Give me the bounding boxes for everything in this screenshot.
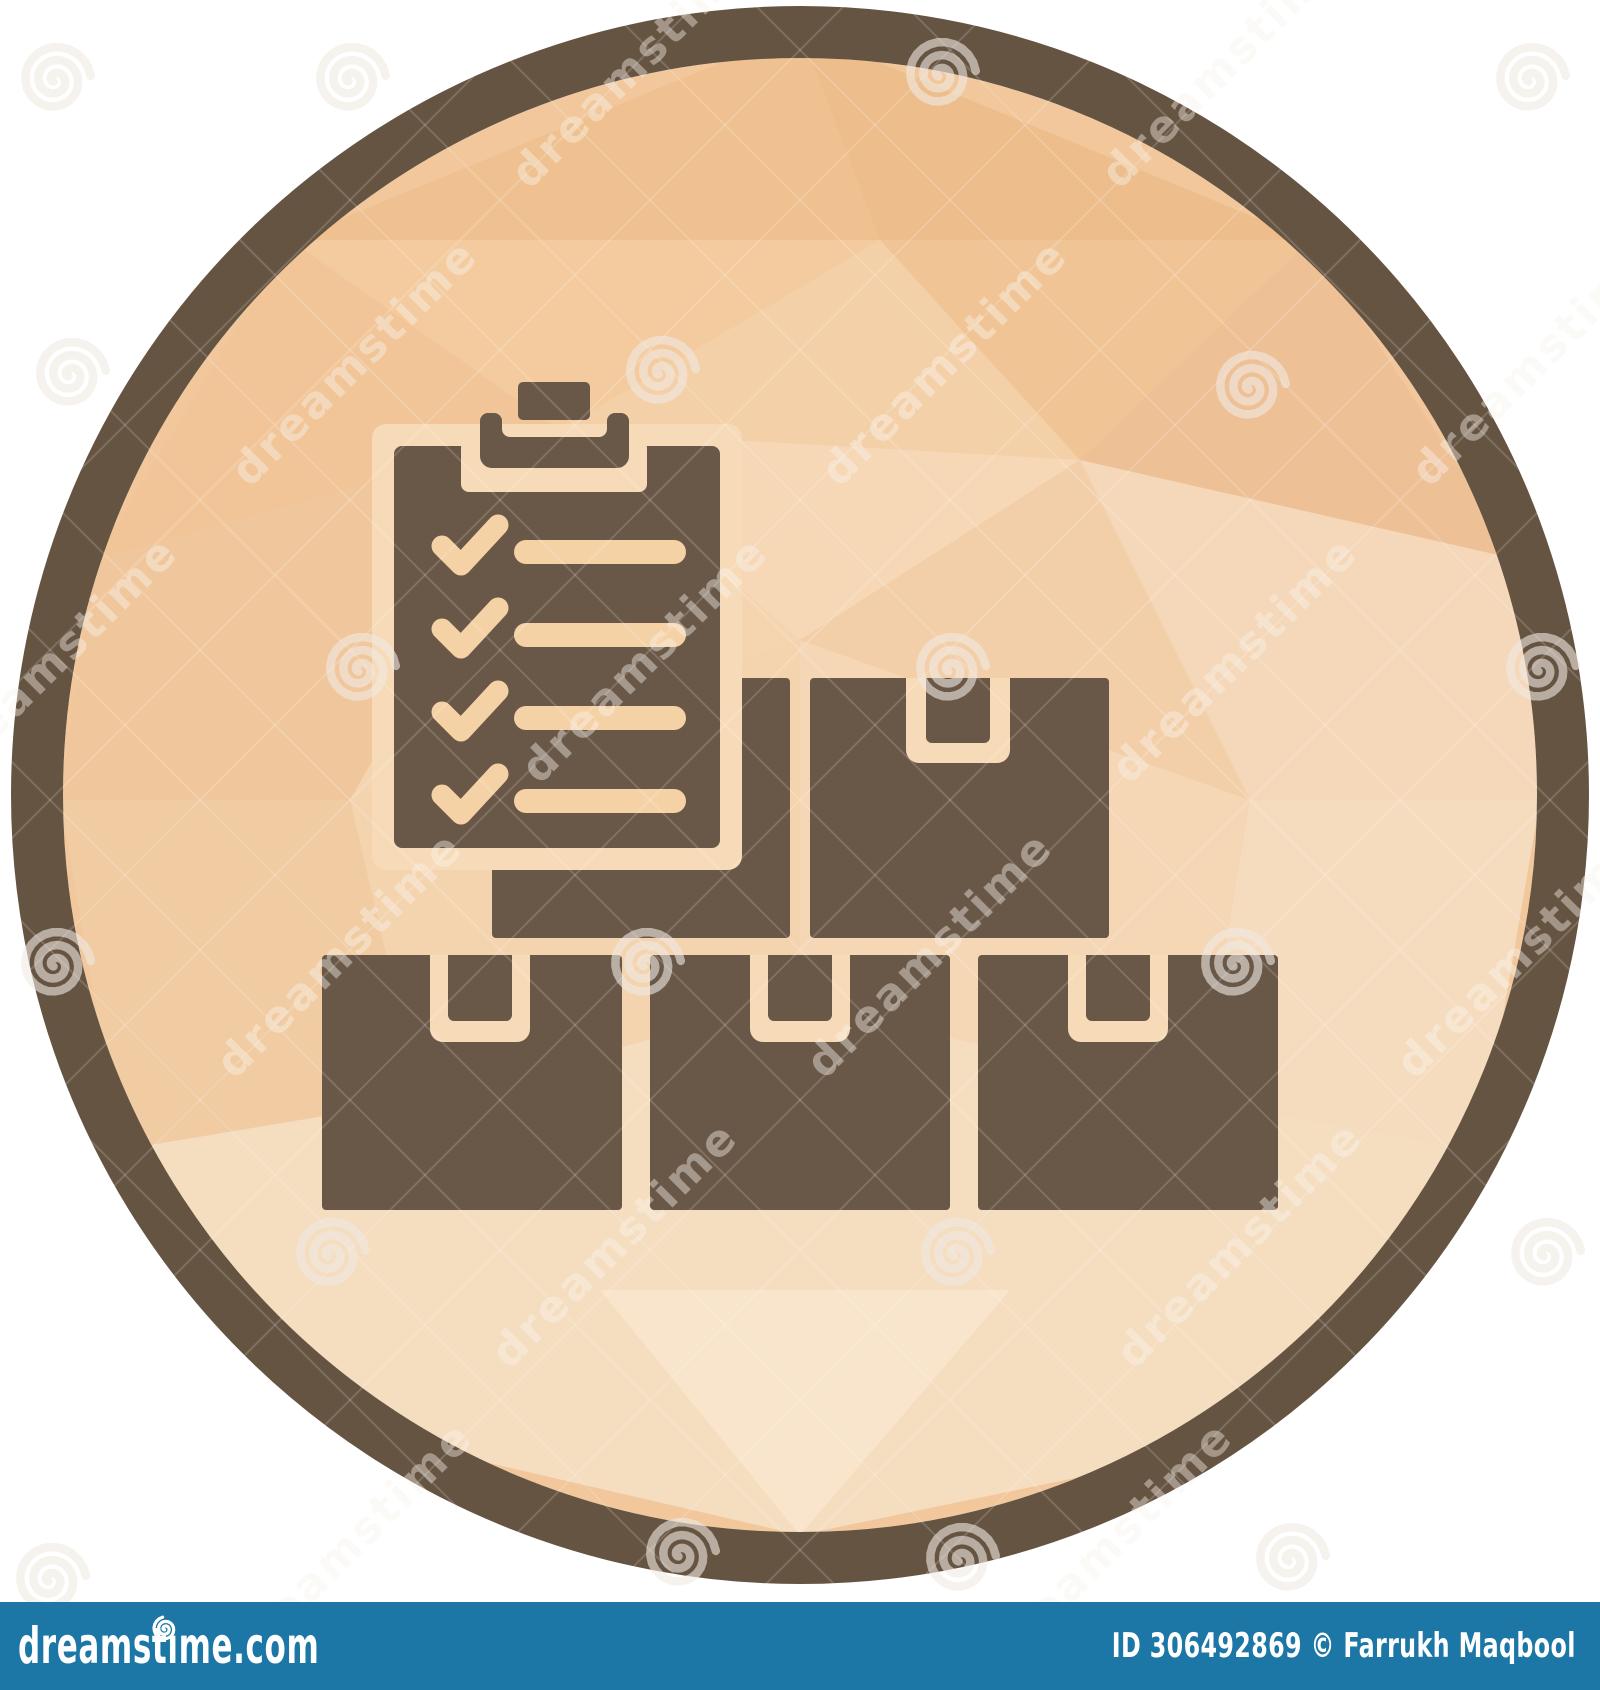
dreamstime-logo: dreamstıme.com	[0, 1602, 504, 1690]
image-credit: ID 306492869 © Farrukh Maqbool	[1112, 1626, 1576, 1666]
watermark-spiral-icon	[320, 47, 385, 106]
icon-artwork: dreamstimedreamstimedreamstimedreamstime…	[0, 0, 1600, 1690]
watermark-bar: dreamstıme.com ID 306492869 © Farrukh Ma…	[0, 1602, 1600, 1690]
dreamstime-spiral-icon	[150, 1614, 180, 1644]
watermark-spiral-icon	[930, 1527, 995, 1586]
watermark-spiral-icon	[25, 47, 90, 106]
watermark-spiral-icon	[1500, 47, 1565, 106]
watermark-spiral-icon	[1260, 1527, 1325, 1586]
watermark-spiral-icon	[1515, 1222, 1580, 1281]
watermark-spiral-icon	[40, 342, 105, 401]
stock-image-preview: dreamstimedreamstimedreamstimedreamstime…	[0, 0, 1600, 1690]
watermark-spiral-icon	[20, 1547, 85, 1606]
